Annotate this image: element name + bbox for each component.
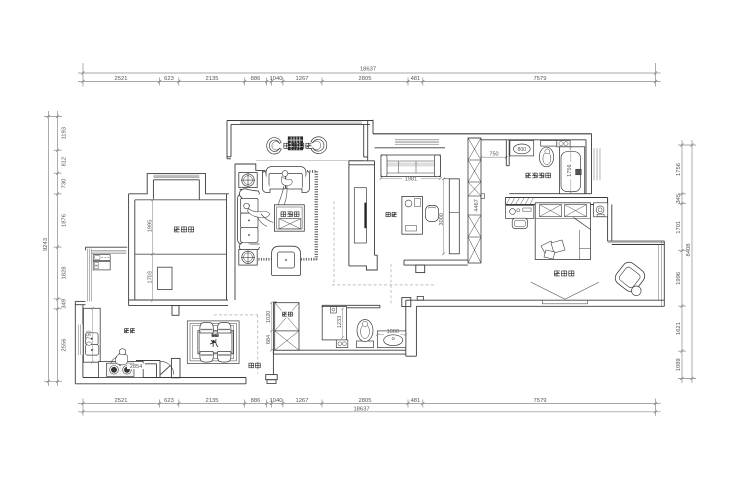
svg-text:18637: 18637 bbox=[353, 406, 369, 412]
svg-text:1996: 1996 bbox=[676, 272, 682, 285]
svg-text:18637: 18637 bbox=[360, 67, 376, 73]
svg-text:800: 800 bbox=[517, 147, 526, 153]
svg-text:1701: 1701 bbox=[676, 221, 682, 234]
svg-text:2854: 2854 bbox=[130, 364, 142, 370]
svg-text:1267: 1267 bbox=[296, 76, 309, 82]
svg-text:1089: 1089 bbox=[676, 358, 682, 371]
svg-text:9243: 9243 bbox=[43, 238, 49, 251]
svg-text:4467: 4467 bbox=[474, 199, 480, 211]
svg-text:1040: 1040 bbox=[270, 76, 283, 82]
svg-text:1756: 1756 bbox=[676, 163, 682, 176]
svg-text:1621: 1621 bbox=[676, 322, 682, 335]
svg-text:1040: 1040 bbox=[270, 398, 283, 404]
svg-text:1233: 1233 bbox=[337, 316, 343, 328]
svg-text:349: 349 bbox=[62, 299, 68, 309]
svg-text:886: 886 bbox=[251, 76, 261, 82]
svg-text:2556: 2556 bbox=[62, 339, 68, 352]
svg-text:1193: 1193 bbox=[62, 127, 68, 139]
svg-text:730: 730 bbox=[62, 179, 68, 189]
svg-text:623: 623 bbox=[164, 76, 174, 82]
svg-text:2805: 2805 bbox=[359, 76, 372, 82]
svg-text:2135: 2135 bbox=[206, 398, 219, 404]
svg-text:623: 623 bbox=[164, 398, 174, 404]
svg-text:1828: 1828 bbox=[62, 267, 68, 280]
svg-text:1995: 1995 bbox=[147, 220, 153, 232]
svg-text:1020: 1020 bbox=[266, 311, 272, 323]
svg-text:2521: 2521 bbox=[115, 76, 128, 82]
svg-text:345: 345 bbox=[676, 194, 682, 204]
svg-text:1267: 1267 bbox=[296, 398, 309, 404]
svg-text:7579: 7579 bbox=[534, 398, 547, 404]
svg-text:481: 481 bbox=[411, 76, 421, 82]
svg-text:812: 812 bbox=[62, 157, 68, 167]
svg-text:481: 481 bbox=[411, 398, 421, 404]
svg-text:750: 750 bbox=[86, 331, 92, 340]
svg-text:2135: 2135 bbox=[206, 76, 219, 82]
svg-text:7579: 7579 bbox=[534, 76, 547, 82]
svg-text:2521: 2521 bbox=[115, 398, 128, 404]
svg-text:2805: 2805 bbox=[359, 398, 372, 404]
svg-text:886: 886 bbox=[251, 398, 261, 404]
svg-text:684: 684 bbox=[266, 335, 272, 344]
svg-text:1876: 1876 bbox=[62, 214, 68, 227]
svg-text:3000: 3000 bbox=[439, 213, 445, 225]
svg-text:750: 750 bbox=[489, 152, 498, 158]
svg-text:1981: 1981 bbox=[405, 177, 417, 183]
svg-text:1000: 1000 bbox=[387, 329, 399, 335]
svg-text:8408: 8408 bbox=[686, 244, 692, 257]
svg-text:1703: 1703 bbox=[147, 271, 153, 283]
svg-text:1756: 1756 bbox=[567, 164, 573, 176]
